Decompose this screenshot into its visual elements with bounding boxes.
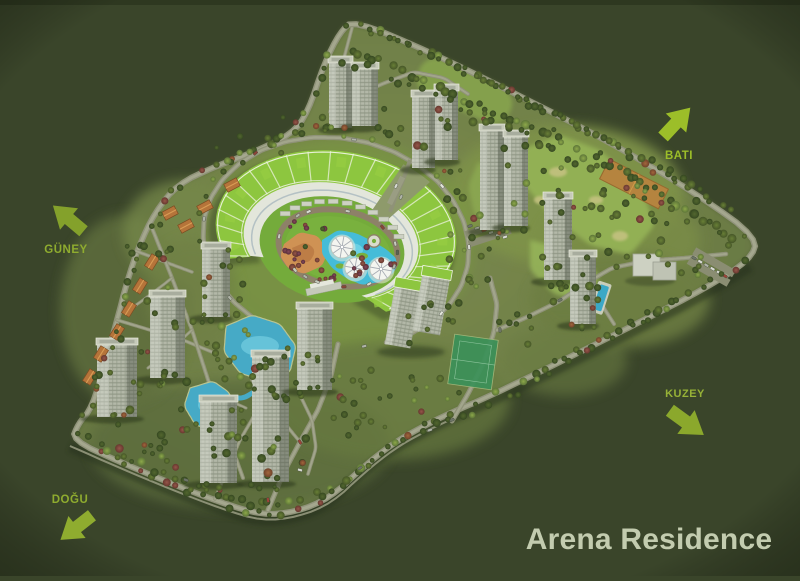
svg-text:KUZEY: KUZEY — [665, 388, 705, 400]
svg-text:GÜNEY: GÜNEY — [44, 243, 87, 256]
svg-text:BATI: BATI — [665, 150, 693, 162]
svg-text:Arena Residence: Arena Residence — [526, 523, 772, 556]
svg-text:DOĞU: DOĞU — [52, 493, 89, 506]
